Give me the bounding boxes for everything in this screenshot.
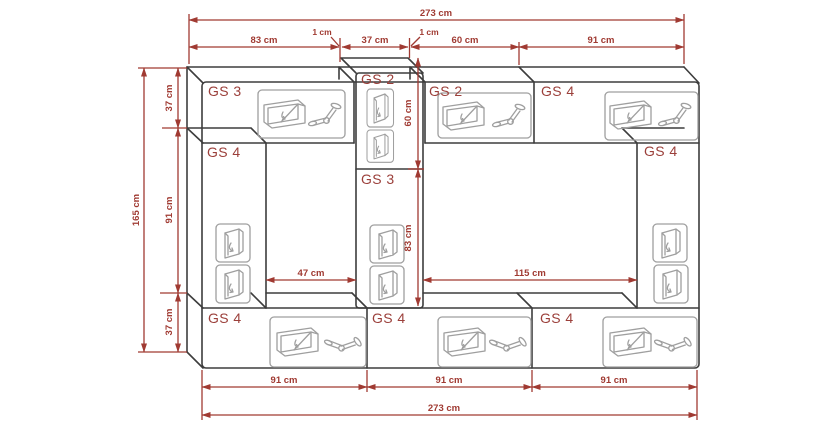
door-icon xyxy=(367,89,394,127)
door-icons-right-column xyxy=(653,224,688,303)
module-label-top-middle: GS 2 xyxy=(429,83,463,99)
flap-door-icon xyxy=(277,328,318,356)
door-icon xyxy=(370,266,404,304)
flap-panel-bottom-left xyxy=(270,317,366,367)
dim-label-bottom-2: 91 cm xyxy=(436,375,463,386)
module-label-right-column: GS 4 xyxy=(644,143,678,159)
flap-panel-gs4-top xyxy=(605,92,698,140)
module-label-bottom-middle: GS 4 xyxy=(372,310,406,326)
module-label-top-right: GS 4 xyxy=(541,83,575,99)
gs3-right-gap xyxy=(339,67,354,143)
dim-label-left-bottom: 37 cm xyxy=(164,309,175,336)
dim-label-opening-right: 115 cm xyxy=(514,268,546,279)
flap-door-icon xyxy=(444,328,485,356)
module-label-bottom-left: GS 4 xyxy=(208,310,242,326)
door-icons-column-gs2 xyxy=(367,89,394,162)
gas-strut-icon xyxy=(653,323,694,362)
dimension-lines xyxy=(144,20,697,415)
gas-strut-icon xyxy=(658,102,691,126)
flap-door-icon xyxy=(264,100,305,128)
diag-top-right xyxy=(684,67,699,83)
diag-top-left xyxy=(187,67,203,83)
diag-left-row2 xyxy=(187,293,203,308)
dimension-labels: 273 cm 83 cm 1 cm 37 cm 1 cm 60 cm 91 cm… xyxy=(131,8,627,414)
furniture-dimension-diagram: 273 cm 83 cm 1 cm 37 cm 1 cm 60 cm 91 cm… xyxy=(0,0,840,430)
door-icon xyxy=(216,224,250,262)
flap-panel-gs3 xyxy=(258,90,345,138)
module-label-column-middle: GS 3 xyxy=(361,171,395,187)
dim-label-gap-left: 1 cm xyxy=(312,27,332,37)
dim-label-gs2-width: 60 cm xyxy=(452,35,479,46)
dim-label-column-width: 37 cm xyxy=(362,35,389,46)
bottom-row-diagonals xyxy=(251,293,637,308)
dim-label-opening-left: 47 cm xyxy=(298,268,325,279)
gas-strut-icon xyxy=(323,323,364,362)
door-icon xyxy=(653,224,687,262)
dim-label-bottom-3: 91 cm xyxy=(601,375,628,386)
gas-strut-icon xyxy=(308,102,341,126)
door-icons-column-gs3 xyxy=(370,225,404,304)
door-icon xyxy=(367,130,394,162)
dim-label-gap-right: 1 cm xyxy=(419,27,439,37)
door-icon xyxy=(370,225,404,263)
flap-panel-bottom-middle xyxy=(438,317,531,367)
diag-bottom-left xyxy=(187,352,203,368)
door-icon xyxy=(216,265,250,303)
diagram-canvas: 273 cm 83 cm 1 cm 37 cm 1 cm 60 cm 91 cm… xyxy=(0,0,840,430)
gas-strut-icon xyxy=(488,323,529,362)
gas-strut-icon xyxy=(492,103,525,127)
dim-label-total-top: 273 cm xyxy=(420,8,452,19)
module-label-column-top: GS 2 xyxy=(361,71,395,87)
dim-label-left-top: 37 cm xyxy=(164,85,175,112)
dim-label-total-bottom: 273 cm xyxy=(428,403,460,414)
flap-door-icon xyxy=(610,328,651,356)
dim-label-gs3-width: 83 cm xyxy=(251,35,278,46)
dim-label-bottom-1: 91 cm xyxy=(271,375,298,386)
flap-door-icon xyxy=(443,102,484,130)
dim-label-column-gs3-height: 83 cm xyxy=(403,225,414,252)
flap-panel-gs2 xyxy=(438,93,531,138)
dim-label-left-middle: 91 cm xyxy=(164,197,175,224)
module-label-left-column: GS 4 xyxy=(207,144,241,160)
module-label-top-left: GS 3 xyxy=(208,83,242,99)
dim-label-column-gs2-height: 60 cm xyxy=(403,100,414,127)
flap-door-icon xyxy=(610,101,651,129)
module-labels: GS 3 GS 2 GS 2 GS 4 GS 4 GS 3 GS 4 GS 4 … xyxy=(207,71,678,326)
door-icons-left-column xyxy=(216,224,250,303)
dim-label-gs4-width: 91 cm xyxy=(588,35,615,46)
module-label-bottom-right: GS 4 xyxy=(540,310,574,326)
diag-left-row1 xyxy=(187,128,203,143)
flap-panel-bottom-right xyxy=(603,317,697,367)
door-icon xyxy=(654,265,688,303)
dim-label-total-height: 165 cm xyxy=(131,194,142,226)
